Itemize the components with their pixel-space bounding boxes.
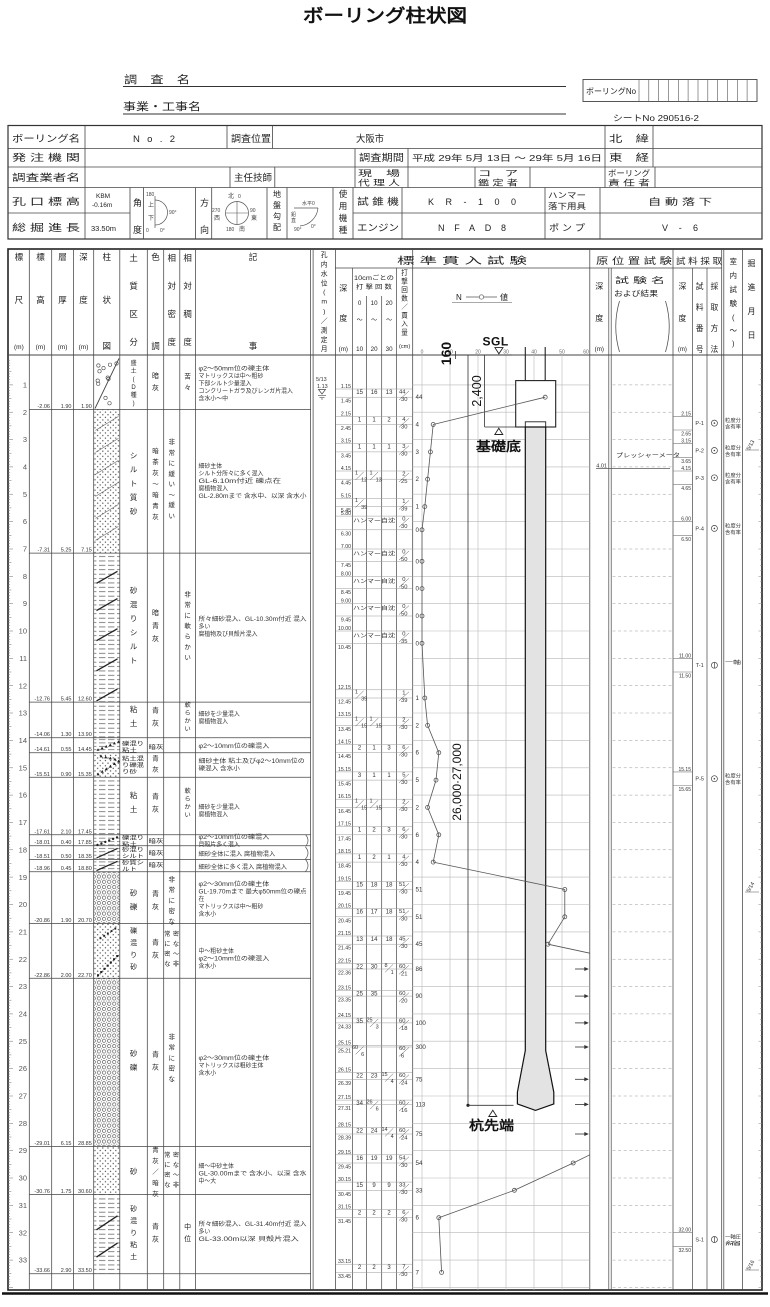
svg-text:15: 15	[376, 806, 382, 812]
svg-text:水: 水	[321, 269, 328, 278]
svg-text:細砂主体 粘土及びφ2〜10mm位の: 細砂主体 粘土及びφ2〜10mm位の	[199, 757, 305, 765]
svg-text:非: 非	[184, 590, 191, 599]
svg-text:23: 23	[19, 982, 27, 991]
svg-text:り: り	[130, 951, 137, 959]
svg-text:-18.51: -18.51	[34, 854, 50, 860]
svg-text:2: 2	[416, 804, 420, 811]
svg-text:24.15: 24.15	[338, 1013, 351, 1019]
svg-text:15: 15	[356, 882, 363, 888]
svg-text:密: 密	[168, 906, 175, 915]
svg-text:90: 90	[416, 993, 423, 1000]
svg-text:含水小〜中: 含水小〜中	[199, 395, 229, 403]
svg-text:50: 50	[401, 584, 407, 590]
svg-text:30.60: 30.60	[78, 1189, 92, 1195]
svg-text:に: に	[184, 612, 191, 620]
svg-text:): )	[323, 309, 325, 316]
svg-text:12.60: 12.60	[78, 697, 92, 703]
svg-text:勾: 勾	[273, 211, 281, 221]
svg-text:5/13: 5/13	[316, 377, 327, 383]
svg-text:KBM: KBM	[96, 193, 110, 200]
svg-text:6: 6	[416, 832, 420, 839]
svg-text:軟: 軟	[184, 621, 191, 630]
svg-text:直: 直	[291, 217, 296, 224]
svg-text:向: 向	[200, 224, 209, 235]
svg-text:50: 50	[401, 612, 407, 618]
svg-text:な: な	[168, 1075, 175, 1083]
svg-text:試 錐 機: 試 錐 機	[357, 196, 400, 208]
svg-text:対: 対	[183, 281, 192, 291]
svg-text:に: に	[168, 459, 175, 467]
svg-text:1.90: 1.90	[61, 918, 72, 924]
svg-text:基礎底: 基礎底	[475, 439, 521, 454]
svg-text:10.00: 10.00	[338, 626, 351, 632]
svg-text:90°: 90°	[294, 227, 302, 233]
svg-text:粘土混: 粘土混	[122, 755, 145, 763]
svg-text:14: 14	[371, 937, 378, 943]
svg-text:(m): (m)	[678, 347, 687, 353]
svg-text:層: 層	[58, 252, 67, 262]
svg-text:75: 75	[416, 1131, 423, 1138]
svg-text:-2.06: -2.06	[37, 404, 50, 410]
svg-text:m: m	[321, 299, 327, 306]
svg-text:21.15: 21.15	[338, 931, 351, 937]
svg-text:調査期間: 調査期間	[359, 152, 404, 164]
svg-text:-20.86: -20.86	[34, 918, 50, 924]
svg-text:0: 0	[421, 350, 424, 356]
svg-text:灰: 灰	[152, 634, 159, 643]
svg-text:(: (	[133, 377, 135, 383]
svg-text:22: 22	[356, 1074, 363, 1080]
svg-text:4.15: 4.15	[681, 466, 691, 472]
svg-text:60: 60	[352, 1045, 358, 1051]
svg-text:度: 度	[133, 224, 142, 235]
svg-text:柱: 柱	[102, 252, 111, 262]
svg-text:日: 日	[748, 331, 756, 340]
svg-text:度: 度	[183, 337, 192, 347]
svg-text:砂質シ: 砂質シ	[122, 859, 144, 867]
svg-text:7.15: 7.15	[81, 548, 92, 554]
svg-text:灰: 灰	[152, 1189, 159, 1198]
svg-text:方: 方	[711, 323, 719, 333]
svg-text:32.50: 32.50	[678, 1248, 691, 1254]
svg-text:17.45: 17.45	[78, 829, 92, 835]
svg-text:SGL: SGL	[483, 335, 509, 349]
svg-text:験: 験	[730, 299, 738, 308]
svg-text:上: 上	[148, 201, 154, 209]
svg-text:ボーリング: ボーリング	[608, 168, 650, 178]
svg-text:4.45: 4.45	[341, 481, 351, 487]
svg-text:T-1: T-1	[696, 663, 704, 669]
svg-text:24: 24	[19, 1010, 27, 1019]
svg-text:2.65: 2.65	[681, 432, 691, 438]
svg-text:6: 6	[416, 750, 420, 757]
svg-text:φ2〜10mm位の礫混入: φ2〜10mm位の礫混入	[199, 742, 270, 750]
svg-text:位: 位	[321, 279, 328, 288]
svg-text:粘: 粘	[130, 704, 138, 714]
svg-text:砂: 砂	[130, 962, 137, 971]
svg-text:20: 20	[386, 300, 393, 307]
svg-text:-33.66: -33.66	[34, 1268, 50, 1274]
svg-text:含有率: 含有率	[725, 529, 741, 536]
svg-text:1: 1	[370, 471, 373, 477]
svg-text:2.00: 2.00	[61, 973, 72, 979]
svg-text:調 査 名: 調 査 名	[124, 73, 190, 86]
svg-text:粒度分: 粒度分	[725, 522, 741, 529]
svg-text:土: 土	[129, 253, 138, 263]
svg-text:地: 地	[273, 189, 281, 199]
svg-text:180: 180	[146, 192, 155, 198]
svg-text:30: 30	[401, 1218, 407, 1224]
svg-text:13: 13	[386, 390, 393, 396]
svg-text:(m): (m)	[14, 344, 24, 351]
svg-text:ルト: ルト	[122, 867, 137, 873]
svg-text:ボーリング名: ボーリング名	[12, 133, 80, 145]
svg-text:シートNo 290516-2: シートNo 290516-2	[613, 113, 699, 123]
svg-text:V-6: V-6	[662, 223, 698, 233]
svg-text:16: 16	[371, 390, 378, 396]
svg-text:6: 6	[23, 517, 27, 526]
svg-text:調: 調	[151, 341, 160, 351]
svg-text:17: 17	[19, 818, 27, 827]
svg-text:0: 0	[416, 527, 420, 534]
svg-text:15.35: 15.35	[78, 772, 92, 778]
svg-text:相: 相	[183, 253, 192, 263]
svg-text:一軸圧: 一軸圧	[725, 1234, 741, 1241]
svg-text:12.15: 12.15	[338, 685, 351, 691]
svg-text:60: 60	[399, 1046, 405, 1052]
svg-text:(m): (m)	[36, 344, 46, 351]
svg-text:種: 種	[339, 225, 348, 235]
svg-text:下: 下	[148, 215, 154, 222]
svg-text:26.39: 26.39	[338, 1081, 351, 1087]
svg-text:調査位置: 調査位置	[231, 133, 271, 145]
svg-text:法: 法	[711, 344, 719, 354]
svg-text:種: 種	[131, 391, 137, 399]
svg-text:15: 15	[376, 724, 382, 730]
svg-text:22: 22	[356, 1128, 363, 1134]
svg-text:25: 25	[366, 1018, 372, 1024]
svg-text:い: い	[185, 726, 191, 733]
svg-text:多い: 多い	[199, 1228, 211, 1236]
svg-text:シ: シ	[130, 628, 138, 637]
svg-text:31: 31	[19, 1201, 27, 1210]
svg-text:(m): (m)	[58, 344, 68, 351]
svg-text:灰: 灰	[152, 1063, 159, 1072]
svg-text:混: 混	[130, 600, 138, 609]
svg-text:6: 6	[361, 1052, 364, 1058]
svg-text:18: 18	[19, 845, 27, 854]
svg-text:腐植物及び貝殻片混入: 腐植物及び貝殻片混入	[199, 630, 258, 638]
svg-text:GL-19.70mまで 最大φ50mm位の礫点: GL-19.70mまで 最大φ50mm位の礫点	[199, 888, 307, 896]
svg-text:φ2〜30mm位の礫主体: φ2〜30mm位の礫主体	[199, 880, 270, 888]
svg-text:22: 22	[19, 955, 27, 964]
svg-text:4.65: 4.65	[681, 486, 691, 492]
svg-text:0: 0	[358, 300, 362, 307]
svg-text:1.30: 1.30	[61, 732, 72, 738]
svg-text:51: 51	[399, 882, 405, 888]
svg-text:29.45: 29.45	[338, 1165, 351, 1171]
svg-text:3.15: 3.15	[681, 439, 691, 445]
svg-text:30: 30	[386, 346, 393, 353]
svg-text:盛: 盛	[131, 359, 137, 367]
svg-text:10: 10	[371, 300, 378, 307]
svg-text:に: に	[168, 1054, 175, 1062]
svg-text:ボーリング柱状図: ボーリング柱状図	[303, 5, 467, 26]
svg-text:4: 4	[416, 422, 420, 429]
svg-text:孔 口 標 高: 孔 口 標 高	[12, 196, 80, 208]
svg-text:16.45: 16.45	[338, 809, 351, 815]
svg-text:-29.01: -29.01	[34, 1141, 50, 1147]
svg-text:深: 深	[595, 282, 603, 291]
svg-text:料: 料	[696, 302, 704, 312]
svg-text:16.15: 16.15	[338, 794, 351, 800]
svg-text:4.15: 4.15	[341, 466, 351, 472]
svg-text:φ2〜30mm位の礫主体: φ2〜30mm位の礫主体	[199, 1054, 270, 1062]
svg-text:区: 区	[129, 309, 138, 319]
svg-text:総 掘 進 長: 総 掘 進 長	[12, 222, 81, 234]
svg-text:落下用具: 落下用具	[548, 201, 586, 211]
svg-text:30: 30	[401, 917, 407, 923]
svg-text:): )	[133, 401, 135, 407]
svg-text:30: 30	[401, 1190, 407, 1196]
svg-text:細砂を少量混入: 細砂を少量混入	[199, 803, 240, 811]
svg-text:1.75: 1.75	[61, 1189, 72, 1195]
svg-text:中〜大: 中〜大	[199, 1177, 217, 1185]
svg-text:含水小: 含水小	[199, 962, 217, 970]
svg-text:0.90: 0.90	[61, 772, 72, 778]
svg-text:り: り	[130, 614, 138, 623]
svg-text:-30.76: -30.76	[34, 1189, 50, 1195]
svg-text:灰: 灰	[152, 1235, 159, 1244]
svg-text:24.33: 24.33	[338, 1024, 351, 1030]
svg-text:3.65: 3.65	[681, 459, 691, 465]
svg-text:粒度分: 粒度分	[725, 472, 741, 479]
svg-text:2: 2	[23, 408, 27, 417]
svg-text:灰: 灰	[152, 951, 159, 960]
svg-text:に: に	[164, 1162, 170, 1169]
svg-text:N: N	[456, 293, 462, 302]
svg-text:青: 青	[152, 792, 159, 801]
svg-text:い: い	[185, 812, 191, 819]
svg-text:ハンマー: ハンマー	[548, 191, 586, 200]
svg-text:33: 33	[19, 1256, 27, 1265]
svg-text:に: に	[168, 897, 175, 905]
svg-text:3: 3	[416, 449, 420, 456]
svg-text:〜: 〜	[173, 1172, 179, 1179]
svg-text:な: な	[164, 961, 170, 968]
svg-text:30: 30	[401, 452, 407, 458]
svg-text:腐植物混入: 腐植物混入	[199, 718, 229, 726]
svg-text:使: 使	[339, 189, 348, 199]
svg-text:18: 18	[386, 937, 393, 943]
svg-text:8.45: 8.45	[341, 590, 351, 596]
svg-text:北 緯: 北 緯	[609, 133, 650, 145]
svg-text:含有率: 含有率	[725, 478, 741, 485]
svg-text:18: 18	[401, 1026, 407, 1032]
svg-text:ら: ら	[185, 796, 191, 803]
svg-text:30: 30	[401, 725, 407, 731]
svg-text:コンクリートガラ及びレンガ片混入: コンクリートガラ及びレンガ片混入	[199, 387, 293, 395]
svg-text:試 験 名: 試 験 名	[615, 275, 665, 285]
svg-text:砂: 砂	[130, 1166, 138, 1176]
svg-text:貝殻片多く混入: 貝殻片多く混入	[199, 841, 240, 849]
svg-text:事: 事	[249, 341, 258, 351]
svg-text:13.90: 13.90	[78, 732, 92, 738]
svg-text:113: 113	[416, 1101, 426, 1108]
svg-text:3.45: 3.45	[341, 453, 351, 459]
svg-text:19: 19	[19, 873, 27, 882]
svg-text:30: 30	[401, 397, 407, 403]
svg-text:〜: 〜	[386, 318, 392, 324]
svg-text:2.15: 2.15	[341, 411, 351, 417]
svg-text:6.00: 6.00	[681, 517, 691, 523]
svg-text:所々細砂混入、GL-31.40m付近 混入: 所々細砂混入、GL-31.40m付近 混入	[199, 1220, 307, 1228]
svg-text:0: 0	[238, 194, 241, 200]
svg-text:細〜中砂主体: 細〜中砂主体	[199, 1162, 234, 1170]
svg-text:平成 29年 5月 13日 〜 29年 5月 16日: 平成 29年 5月 13日 〜 29年 5月 16日	[412, 153, 602, 163]
svg-text:16: 16	[19, 791, 27, 800]
svg-text:多い: 多い	[199, 623, 211, 631]
svg-text:19.45: 19.45	[338, 891, 351, 897]
svg-text:／: ／	[321, 317, 328, 325]
svg-text:な: な	[173, 1162, 179, 1169]
svg-text:GL-2.80mまで 含水中、以深 含水小: GL-2.80mまで 含水中、以深 含水小	[199, 492, 307, 500]
svg-text:灰: 灰	[152, 468, 159, 477]
svg-text:尺: 尺	[15, 295, 24, 305]
svg-text:所々細砂混入、GL-10.30m付近 混入: 所々細砂混入、GL-10.30m付近 混入	[199, 615, 307, 623]
svg-text:26.15: 26.15	[338, 1068, 351, 1074]
svg-text:マトリックスは中〜粗砂: マトリックスは中〜粗砂	[199, 372, 264, 380]
svg-text:青: 青	[152, 889, 159, 898]
svg-text:60: 60	[399, 1019, 405, 1025]
svg-text:粘土: 粘土	[122, 746, 138, 754]
svg-text:S-1: S-1	[695, 1238, 704, 1244]
svg-text:号: 号	[696, 345, 704, 354]
svg-text:図: 図	[102, 341, 111, 351]
svg-text:60: 60	[399, 964, 405, 970]
svg-text:14: 14	[19, 736, 27, 745]
svg-text:30.45: 30.45	[338, 1192, 351, 1198]
svg-text:ら: ら	[184, 633, 191, 641]
svg-text:12: 12	[19, 681, 27, 690]
svg-text:度: 度	[679, 313, 687, 323]
svg-text:シ: シ	[130, 451, 138, 460]
svg-text:1: 1	[23, 381, 27, 390]
svg-text:25: 25	[401, 479, 407, 485]
svg-text:機: 機	[339, 213, 348, 223]
svg-text:44: 44	[416, 394, 423, 401]
svg-text:主任技師: 主任技師	[234, 172, 272, 184]
svg-text:160: 160	[438, 342, 454, 366]
svg-text:35: 35	[401, 639, 407, 645]
svg-text:1.15: 1.15	[341, 384, 351, 390]
svg-text:18: 18	[371, 882, 378, 888]
svg-text:0: 0	[416, 640, 420, 647]
svg-text:9.45: 9.45	[341, 618, 351, 624]
svg-text:86: 86	[416, 966, 423, 973]
svg-text:1: 1	[355, 471, 358, 477]
svg-text:3.15: 3.15	[341, 439, 351, 445]
svg-text:採: 採	[711, 281, 719, 291]
svg-text:礫: 礫	[130, 926, 137, 935]
svg-text:暗灰: 暗灰	[149, 849, 165, 857]
svg-text:か: か	[184, 643, 191, 651]
svg-text:60: 60	[583, 350, 589, 356]
svg-text:下部シルト少量混入: 下部シルト少量混入	[199, 380, 252, 388]
svg-text:18.35: 18.35	[78, 854, 92, 860]
svg-text:〜: 〜	[168, 492, 175, 499]
svg-text:一軸: 一軸	[725, 659, 741, 666]
svg-text:配: 配	[273, 223, 281, 232]
svg-text:常: 常	[164, 930, 170, 938]
svg-text:礫混り: 礫混り	[122, 740, 144, 748]
svg-text:20: 20	[401, 999, 407, 1005]
svg-text:非: 非	[168, 1032, 175, 1041]
svg-text:15: 15	[381, 1072, 387, 1078]
svg-text:密: 密	[164, 950, 170, 958]
svg-text:質: 質	[130, 492, 138, 502]
svg-text:打: 打	[401, 268, 408, 277]
svg-text:15.45: 15.45	[338, 782, 351, 788]
svg-text:25.15: 25.15	[338, 1040, 351, 1046]
svg-text:28.85: 28.85	[78, 1141, 92, 1147]
svg-text:51: 51	[416, 914, 423, 921]
svg-text:11: 11	[19, 654, 27, 663]
svg-text:量: 量	[401, 329, 408, 337]
svg-text:ハンマー自沈: ハンマー自沈	[353, 577, 396, 585]
svg-text:対: 対	[167, 281, 176, 291]
svg-text:22.15: 22.15	[338, 958, 351, 964]
svg-text:23.15: 23.15	[338, 986, 351, 992]
svg-text:45: 45	[399, 937, 405, 943]
svg-text:13: 13	[376, 478, 382, 484]
svg-text:粘: 粘	[130, 1240, 137, 1249]
svg-text:21: 21	[19, 928, 27, 937]
svg-text:撃: 撃	[401, 277, 408, 286]
svg-text:ハンマー自沈: ハンマー自沈	[353, 517, 396, 525]
svg-text:標: 標	[15, 252, 24, 262]
svg-text:暗: 暗	[152, 490, 159, 499]
svg-text:度: 度	[595, 313, 603, 323]
svg-text:GL-33.00m以深 貝殻片混入: GL-33.00m以深 貝殻片混入	[199, 1235, 299, 1243]
svg-text:30: 30	[401, 835, 407, 841]
svg-text:ら: ら	[185, 710, 191, 717]
svg-text:18.15: 18.15	[338, 849, 351, 855]
svg-text:GL-6.10m付近 礫点在: GL-6.10m付近 礫点在	[199, 477, 282, 485]
svg-text:15: 15	[361, 806, 367, 812]
svg-text:状: 状	[102, 295, 111, 305]
svg-text:灰: 灰	[152, 805, 159, 814]
svg-text:19: 19	[386, 1156, 393, 1162]
svg-text:1: 1	[416, 695, 420, 702]
svg-text:30: 30	[401, 889, 407, 895]
svg-text:6: 6	[401, 1053, 404, 1059]
svg-text:4: 4	[391, 1134, 394, 1140]
svg-text:15: 15	[361, 724, 367, 730]
svg-text:質: 質	[129, 281, 138, 291]
svg-text:シルト: シルト	[122, 854, 144, 860]
svg-text:鉛: 鉛	[291, 211, 296, 218]
svg-text:-0.16m: -0.16m	[92, 202, 112, 209]
svg-text:月: 月	[321, 345, 328, 353]
svg-text:32.00: 32.00	[678, 1228, 691, 1234]
svg-text:苦: 苦	[184, 372, 191, 381]
svg-text:19: 19	[371, 1156, 378, 1162]
svg-text:39: 39	[401, 506, 407, 512]
svg-text:270: 270	[212, 208, 221, 214]
svg-text:中: 中	[184, 1222, 191, 1231]
svg-text:ハンマー自沈: ハンマー自沈	[353, 604, 396, 612]
